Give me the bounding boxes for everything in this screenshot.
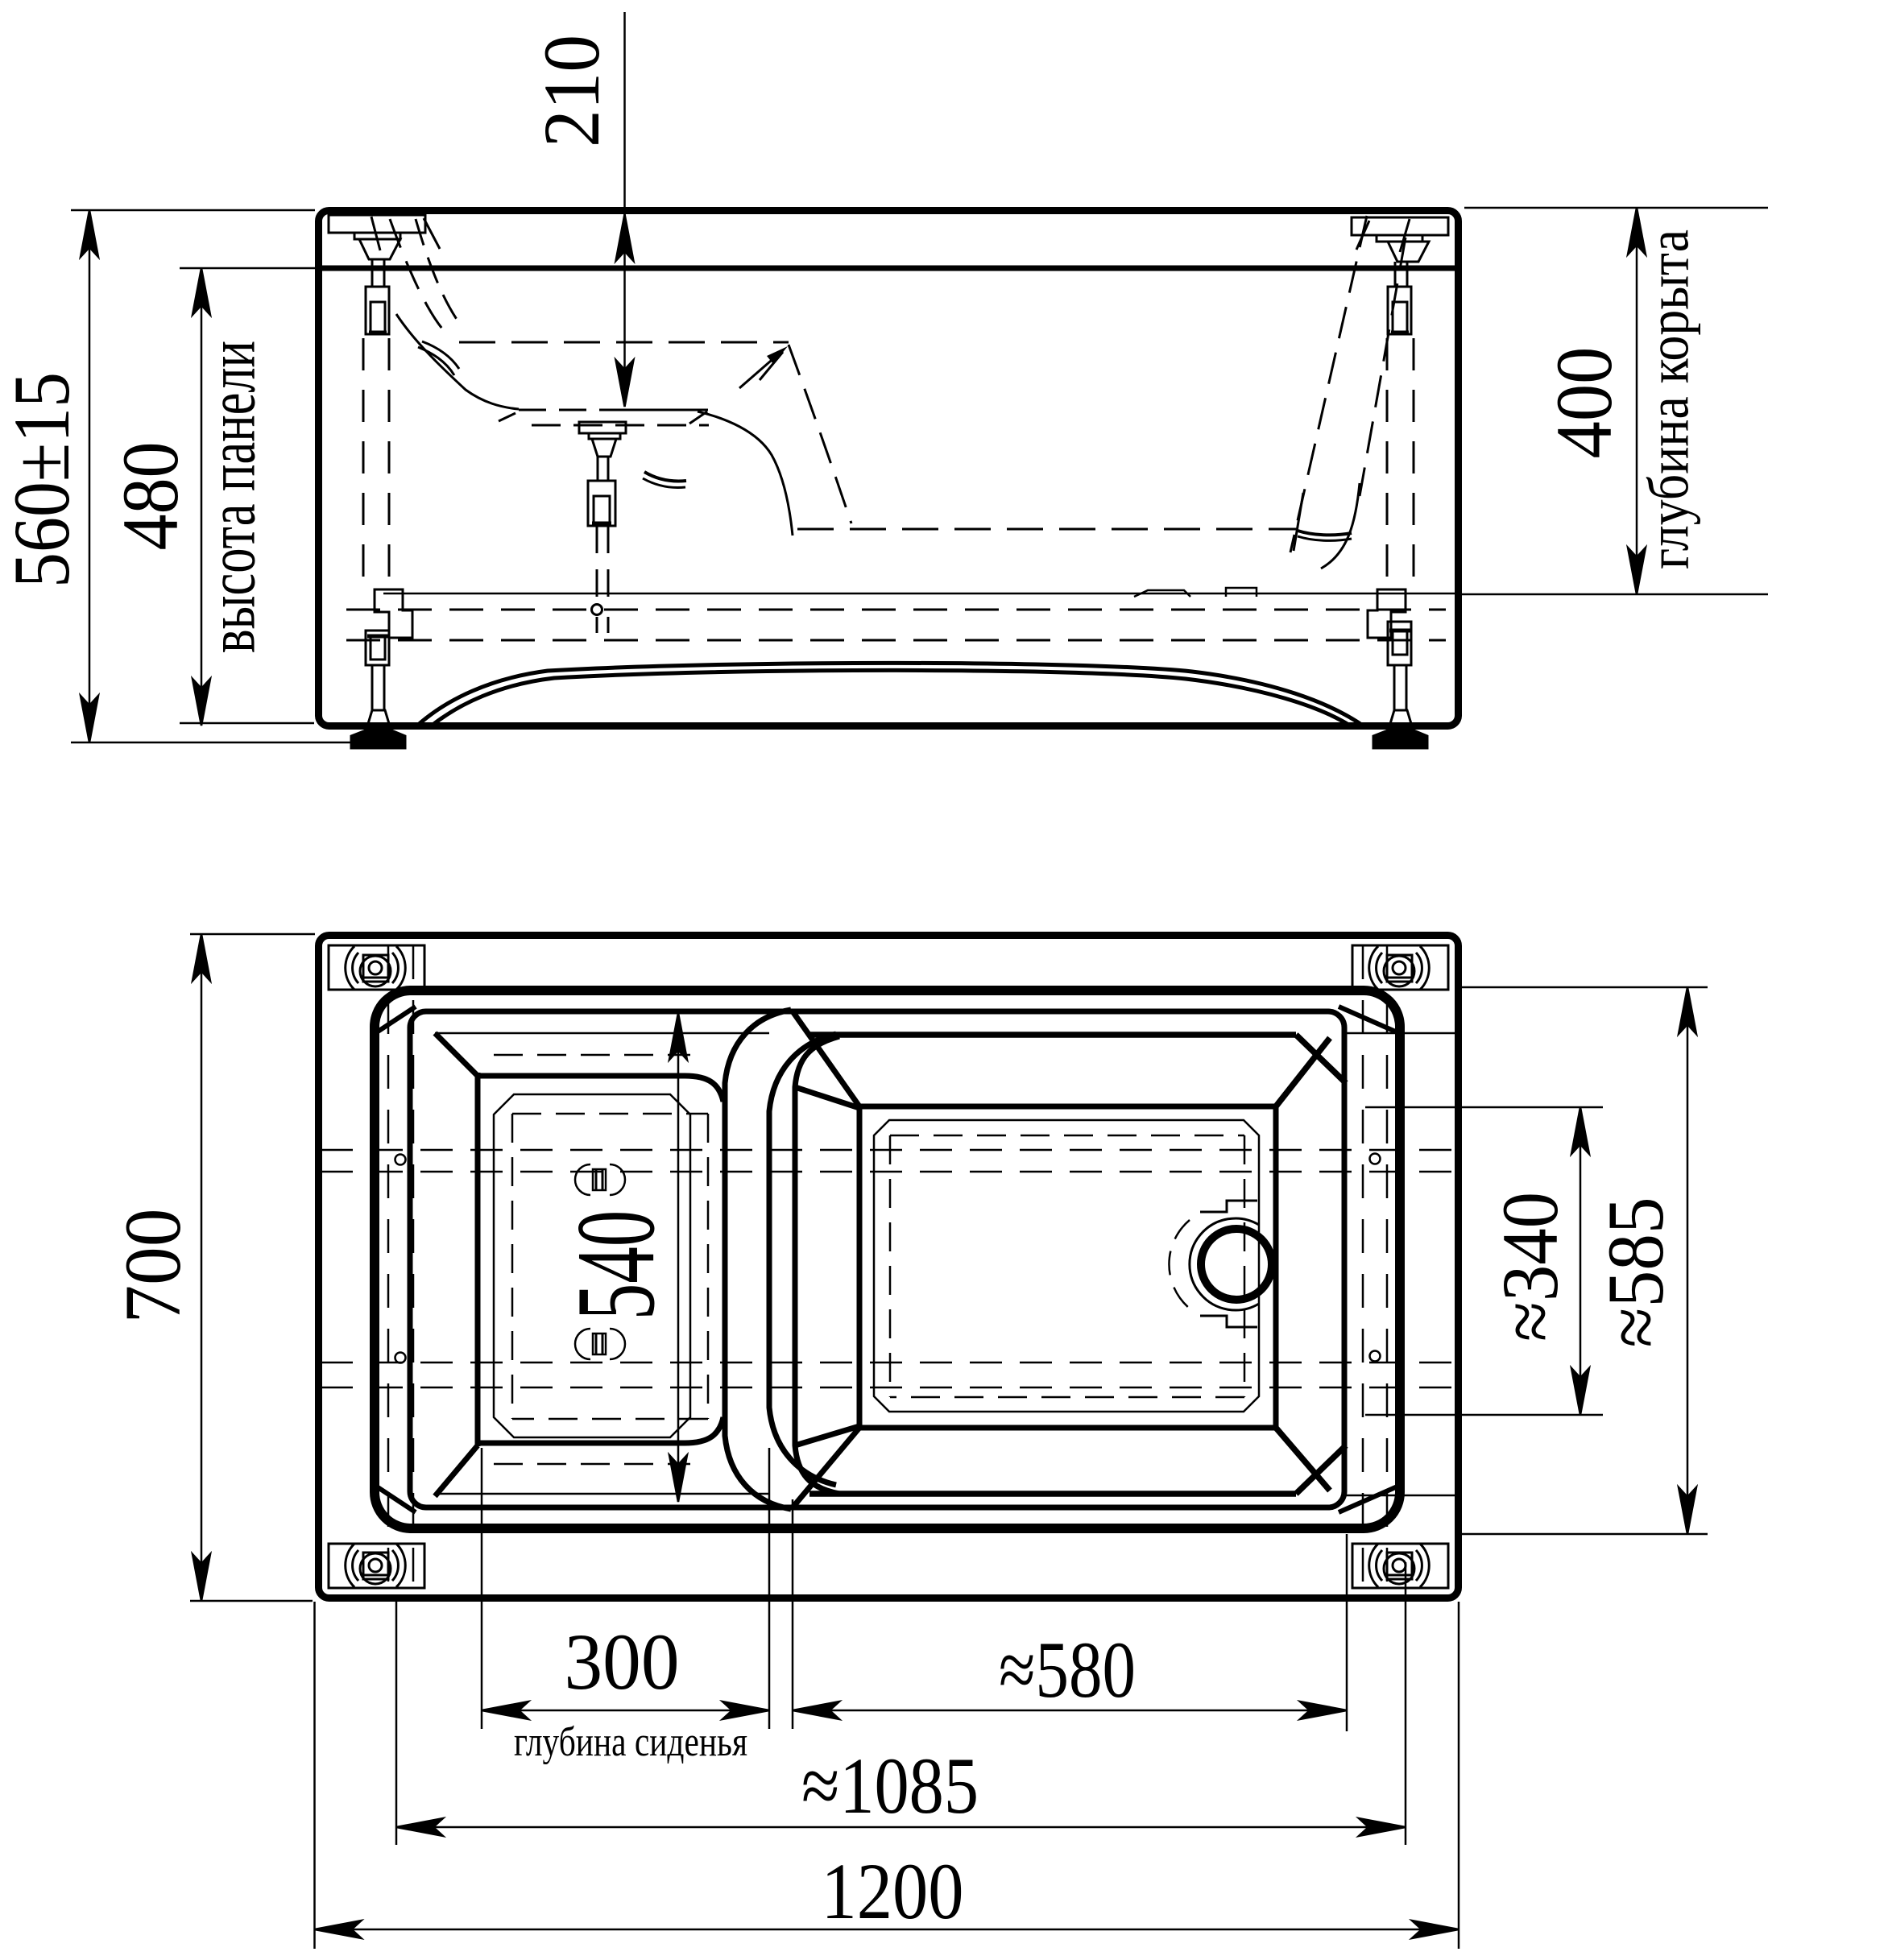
svg-text:560±15: 560±15 <box>0 372 86 588</box>
svg-text:глубина сиденья: глубина сиденья <box>514 1719 747 1765</box>
svg-text:700: 700 <box>108 1209 197 1324</box>
svg-text:540: 540 <box>553 1210 678 1320</box>
svg-text:1200: 1200 <box>822 1846 964 1936</box>
svg-text:высота панели: высота панели <box>194 341 269 653</box>
svg-text:210: 210 <box>527 35 616 147</box>
svg-text:≈580: ≈580 <box>999 1625 1136 1714</box>
svg-text:400: 400 <box>1539 347 1629 459</box>
svg-text:480: 480 <box>106 442 195 551</box>
svg-text:≈340: ≈340 <box>1485 1192 1575 1342</box>
svg-text:глубина корыта: глубина корыта <box>1637 229 1701 569</box>
svg-text:≈585: ≈585 <box>1591 1197 1680 1348</box>
svg-text:300: 300 <box>565 1617 680 1706</box>
svg-text:≈1085: ≈1085 <box>801 1741 979 1830</box>
